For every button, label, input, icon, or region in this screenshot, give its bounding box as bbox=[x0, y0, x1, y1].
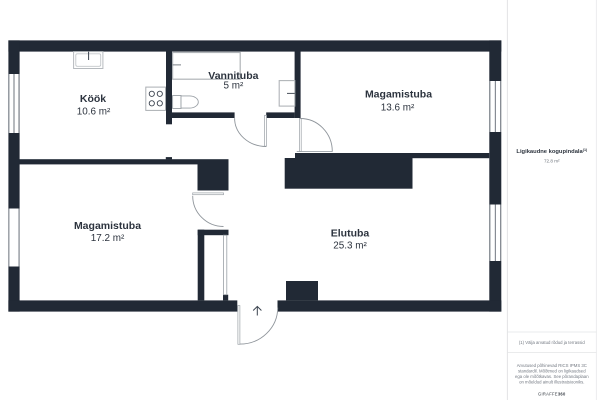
svg-text:on mõeldud ainult illustratsio: on mõeldud ainult illustratsiooniks. bbox=[519, 380, 584, 385]
svg-text:ega ole mõõtkavas. See põranda: ega ole mõõtkavas. See põrandaplaan bbox=[515, 374, 589, 379]
svg-text:Köök: Köök bbox=[80, 93, 106, 105]
svg-text:13.6 m²: 13.6 m² bbox=[381, 103, 415, 114]
svg-text:Magamistuba: Magamistuba bbox=[74, 220, 141, 232]
svg-text:10.6 m²: 10.6 m² bbox=[77, 106, 111, 117]
svg-text:standardil. Mõõtmed on ligikau: standardil. Mõõtmed on ligikaudsed bbox=[518, 369, 586, 374]
svg-text:Ligikaudne kogupindala(1): Ligikaudne kogupindala(1) bbox=[516, 148, 588, 155]
svg-text:Magamistuba: Magamistuba bbox=[365, 88, 432, 100]
svg-text:72.8 m²: 72.8 m² bbox=[544, 159, 560, 164]
svg-text:Arvutused põhinevad RICS IPMS: Arvutused põhinevad RICS IPMS 3C bbox=[517, 363, 587, 368]
svg-text:5 m²: 5 m² bbox=[224, 80, 244, 91]
svg-text:(1) Välja arvatud rõdud ja ter: (1) Välja arvatud rõdud ja terrassid bbox=[519, 340, 586, 345]
svg-text:Elutuba: Elutuba bbox=[331, 227, 370, 239]
svg-text:GIRAFFE360: GIRAFFE360 bbox=[538, 391, 566, 396]
svg-text:17.2 m²: 17.2 m² bbox=[91, 233, 125, 244]
svg-text:25.3 m²: 25.3 m² bbox=[333, 240, 367, 251]
